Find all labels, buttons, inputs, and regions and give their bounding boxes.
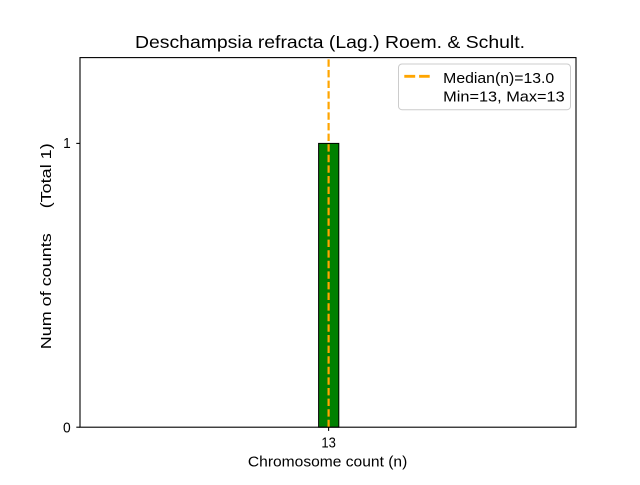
svg-text:13: 13 — [321, 436, 336, 452]
svg-text:Median(n)=13.0: Median(n)=13.0 — [443, 71, 554, 87]
svg-text:0: 0 — [63, 421, 71, 437]
svg-text:1: 1 — [63, 136, 71, 152]
svg-text:Deschampsia refracta (Lag.) Ro: Deschampsia refracta (Lag.) Roem. & Schu… — [135, 32, 525, 52]
svg-text:Chromosome count (n): Chromosome count (n) — [248, 454, 407, 470]
svg-text:Num of counts (Total 1): Num of counts (Total 1) — [39, 143, 55, 349]
svg-text:Min=13, Max=13: Min=13, Max=13 — [443, 89, 565, 105]
